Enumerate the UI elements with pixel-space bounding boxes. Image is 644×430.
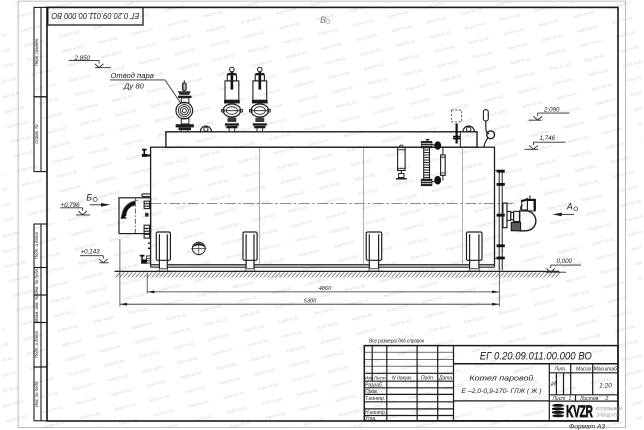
svg-text:Масштаб: Масштаб [594,366,618,372]
svg-text:+0,143: +0,143 [81,248,101,255]
svg-text:1,746: 1,746 [540,135,556,142]
svg-text:Справ. №: Справ. № [34,124,39,144]
svg-text:Инв. № дубл.: Инв. № дубл. [34,268,39,294]
svg-text:0,000: 0,000 [557,258,573,265]
svg-text:Масса: Масса [576,366,591,372]
svg-text:Все размеры для справок: Все размеры для справок [369,338,424,344]
svg-text:1: 1 [569,396,572,402]
svg-text:4860: 4860 [319,286,332,292]
svg-text:Взам. инв. №: Взам. инв. № [34,295,39,322]
svg-text:Отвод пара: Отвод пара [111,71,154,80]
svg-text:Б: Б [86,192,92,202]
svg-text:1:20: 1:20 [599,383,612,390]
svg-text:И: И [551,381,556,388]
svg-text:А: А [566,201,573,211]
svg-text:Лист: Лист [373,375,386,380]
svg-text:5300: 5300 [304,298,317,304]
svg-text:Котел паровой: Котел паровой [469,373,534,382]
svg-text:Разраб.: Разраб. [365,383,383,389]
svg-text:Листов: Листов [579,396,599,402]
svg-text:ЕГ 0.20.09.011.00.000 ВО: ЕГ 0.20.09.011.00.000 ВО [480,350,593,362]
svg-text:Ду 80: Ду 80 [123,81,145,90]
svg-text:КОТЕЛЬНЫЙ: КОТЕЛЬНЫЙ [596,406,622,411]
svg-text:Дата: Дата [438,375,452,381]
svg-text:ЗАВОД РЗР: ЗАВОД РЗР [597,413,621,418]
svg-text:KVZR: KVZR [566,403,593,421]
svg-text:Утв.: Утв. [365,416,376,422]
svg-text:N докум.: N докум. [392,375,412,381]
svg-text:2: 2 [605,396,609,402]
svg-text:Лист: Лист [552,396,566,402]
svg-text:Подп. и дата: Подп. и дата [34,331,39,359]
svg-text:Лит.: Лит. [554,366,567,372]
svg-text:Е –2,0-0,9-170- ГЛЖ ( Ж ): Е –2,0-0,9-170- ГЛЖ ( Ж ) [461,388,541,395]
svg-text:2,090: 2,090 [543,106,560,113]
svg-text:Перв. примен.: Перв. примен. [34,38,39,67]
svg-text:Инв. № подл.: Инв. № подл. [34,381,39,408]
svg-text:Т.контр.: Т.контр. [365,396,385,402]
svg-text:Подп.: Подп. [421,375,434,381]
svg-text:В: В [320,15,326,25]
svg-text:Подп. и дата: Подп. и дата [34,232,39,260]
svg-text:Формат А3: Формат А3 [569,423,605,430]
svg-text:Пров.: Пров. [365,389,378,395]
svg-text:ЕГ 0.20.09.011.00.000 ВО: ЕГ 0.20.09.011.00.000 ВО [51,11,139,20]
